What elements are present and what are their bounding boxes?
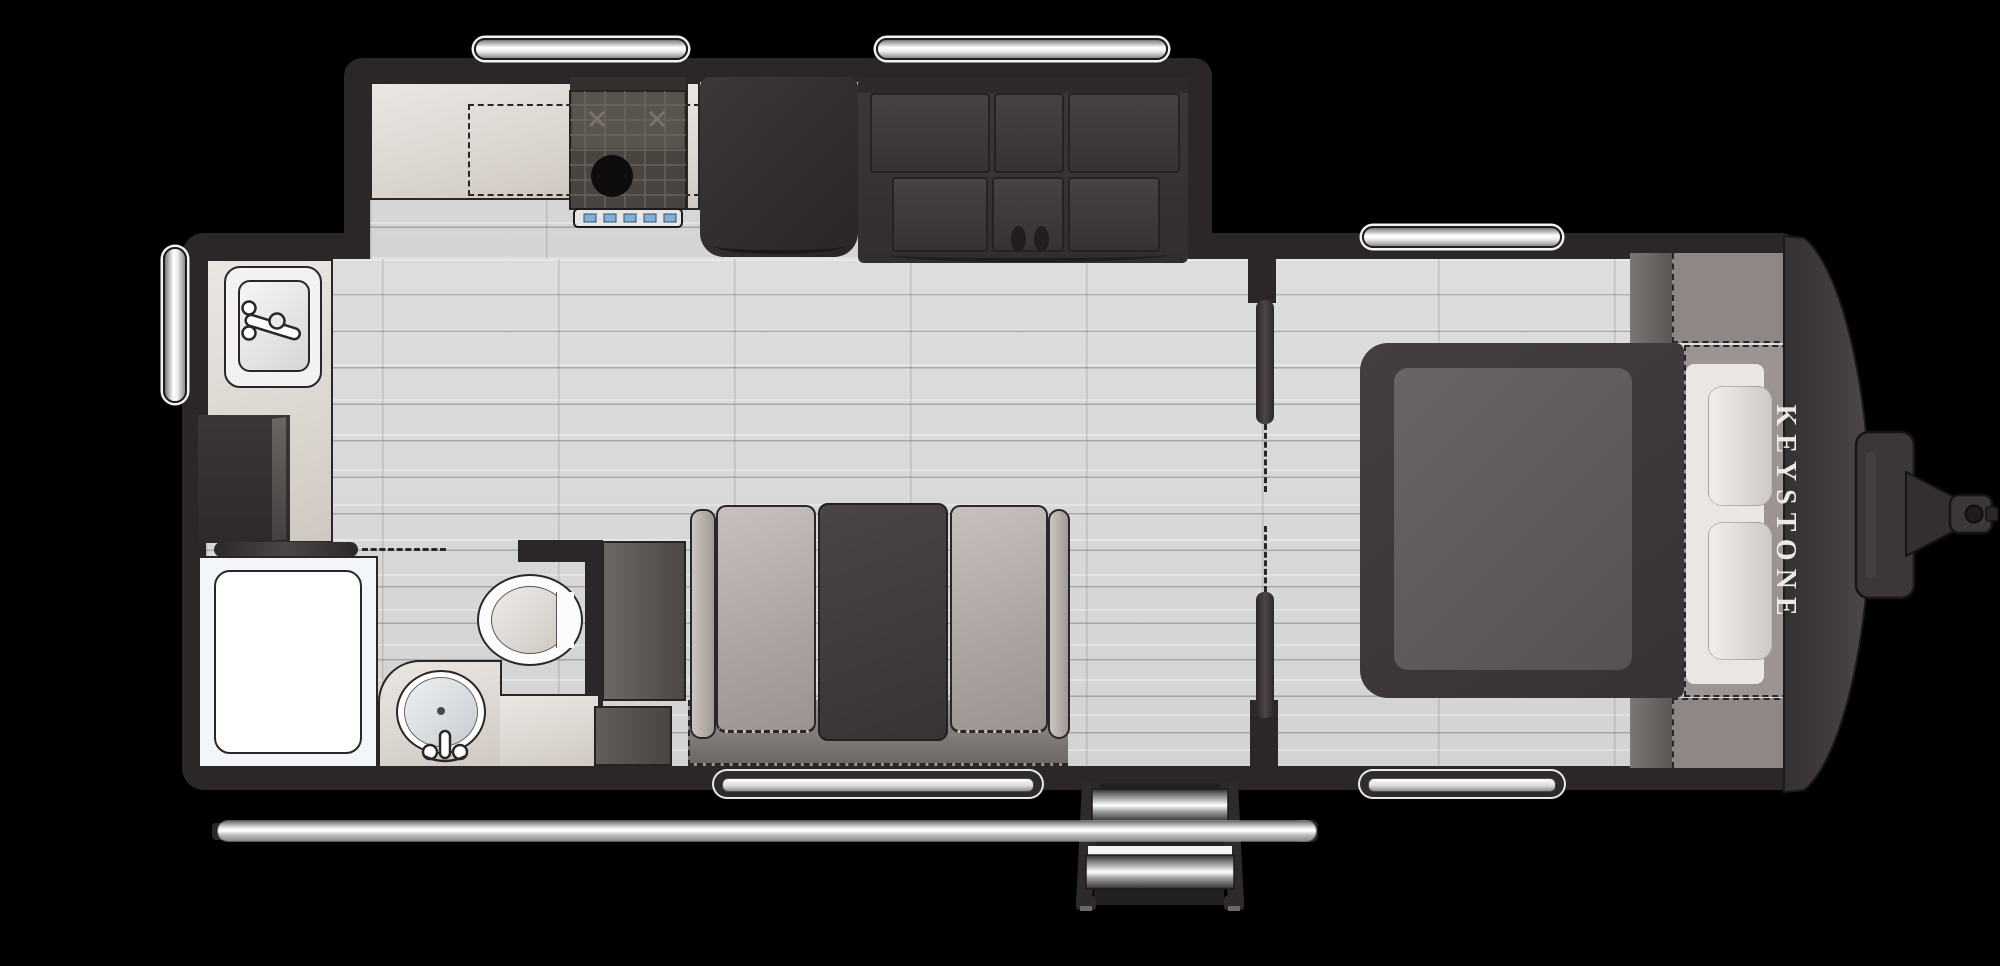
storage-cabinet-lower xyxy=(594,706,672,766)
bedroom-cabinet-strip-bottom xyxy=(1630,698,1672,768)
brand-logo-text: KEYSTONE xyxy=(1761,274,1801,754)
sofa-window xyxy=(714,771,1042,797)
refrigerator-door-arc xyxy=(714,238,844,254)
hitch-tongue xyxy=(1845,420,2000,610)
bedroom-window-bottom xyxy=(1360,771,1564,797)
pantry-cabinet-bevel xyxy=(272,417,286,541)
bedroom-window-top xyxy=(1362,226,1562,248)
cabinet-upper-door-right xyxy=(1068,93,1180,173)
floorplan-canvas: KEYSTONE xyxy=(0,0,2000,966)
mattress xyxy=(1394,368,1632,670)
door-track-dashes xyxy=(1264,424,1267,492)
door-track-dashes xyxy=(1264,526,1267,592)
bathroom-door-track-dashes xyxy=(362,548,446,551)
shower xyxy=(214,570,362,754)
refrigerator xyxy=(700,77,858,257)
awning-rail xyxy=(218,821,1316,841)
sofa-armrest-right xyxy=(1048,509,1070,739)
kitchen-faucet-icon xyxy=(236,296,310,352)
side-window xyxy=(163,247,187,403)
living-window xyxy=(876,38,1168,60)
bedroom-pocket-door-top xyxy=(1256,300,1274,424)
sofa-window-glass xyxy=(722,778,1034,792)
cabinet-lower-door-left xyxy=(892,177,988,252)
sofa-cushion-right xyxy=(950,505,1048,733)
cabinet-lower-door-center xyxy=(992,177,1064,252)
cabinet-upper-door-center xyxy=(994,93,1064,173)
sofa-armrest-left xyxy=(690,509,716,739)
toilet-tank-flat xyxy=(556,592,574,648)
entry-steps xyxy=(1066,780,1256,920)
bathroom-pocket-door xyxy=(214,542,358,557)
bedroom-pocket-door-bottom xyxy=(1256,592,1274,718)
divider-wall-top xyxy=(1248,259,1276,303)
bedroom-cabinet-strip-top xyxy=(1630,253,1672,343)
galley-window xyxy=(474,38,688,60)
cabinet-upper-door-left xyxy=(870,93,990,173)
bedroom-window-glass xyxy=(1368,778,1556,792)
range-stove-icon xyxy=(566,73,692,233)
sofa-cushion-left xyxy=(716,505,816,733)
cabinet-base-arc xyxy=(890,248,1166,262)
storage-cabinet-upper xyxy=(602,541,686,701)
vanity-drain xyxy=(437,707,445,715)
cabinet-top-band xyxy=(858,77,1188,93)
vanity-faucet-icon xyxy=(414,728,478,766)
cabinet-lower-door-right xyxy=(1068,177,1160,252)
vanity-counter-ext xyxy=(500,694,600,768)
sofa-center-console xyxy=(818,503,948,741)
